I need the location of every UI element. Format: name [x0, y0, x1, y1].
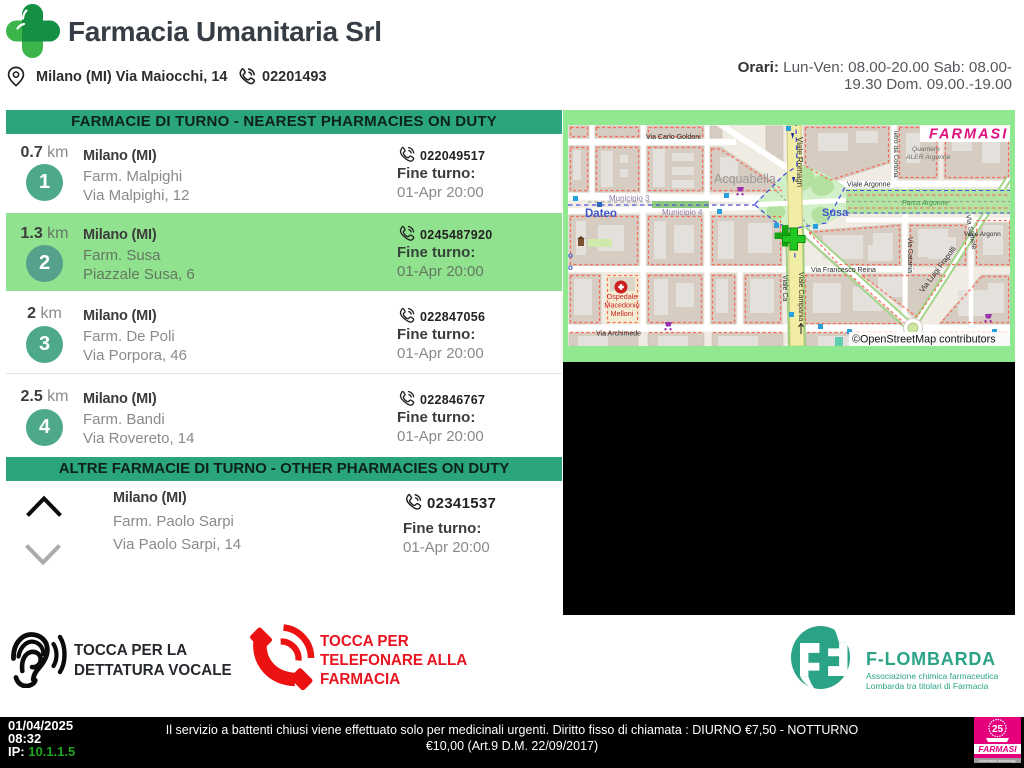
svg-text:Via Archimede: Via Archimede	[596, 331, 641, 338]
svg-text:ietro da Cortona: ietro da Cortona	[892, 131, 899, 178]
svg-text:FARMASI: FARMASI	[978, 744, 1017, 754]
svg-text:Municipio 4: Municipio 4	[662, 208, 703, 217]
svg-text:Viale Campania: Viale Campania	[797, 272, 804, 321]
svg-text:Viale Argonne: Viale Argonne	[847, 182, 891, 189]
svg-text:Quartiere: Quartiere	[912, 146, 940, 153]
svg-text:Viale Romagn: Viale Romagn	[795, 137, 804, 187]
svg-text:o: o	[568, 251, 573, 260]
svg-text:ALER Argonne: ALER Argonne	[905, 154, 951, 161]
svg-text:Viale Ca: Viale Ca	[781, 275, 788, 301]
svg-text:Via Francesco Reina: Via Francesco Reina	[811, 267, 876, 274]
svg-text:information technology: information technology	[979, 759, 1015, 763]
svg-text:Parco Argonne: Parco Argonne	[902, 200, 949, 207]
svg-text:o: o	[568, 263, 573, 272]
svg-text:25: 25	[992, 724, 1004, 735]
svg-text:Via Catania: Via Catania	[906, 237, 913, 273]
svg-text:Acquabella: Acquabella	[714, 172, 776, 186]
svg-text:Via Carlo Goldoni: Via Carlo Goldoni	[646, 134, 701, 141]
svg-text:©OpenStreetMap contributors: ©OpenStreetMap contributors	[852, 334, 996, 346]
svg-text:Dateo: Dateo	[585, 208, 617, 220]
svg-text:FARMASI: FARMASI	[929, 127, 1008, 143]
svg-text:Susa: Susa	[822, 207, 849, 219]
svg-text:Municipio 3: Municipio 3	[609, 194, 650, 203]
svg-text:Melloni: Melloni	[611, 309, 634, 318]
